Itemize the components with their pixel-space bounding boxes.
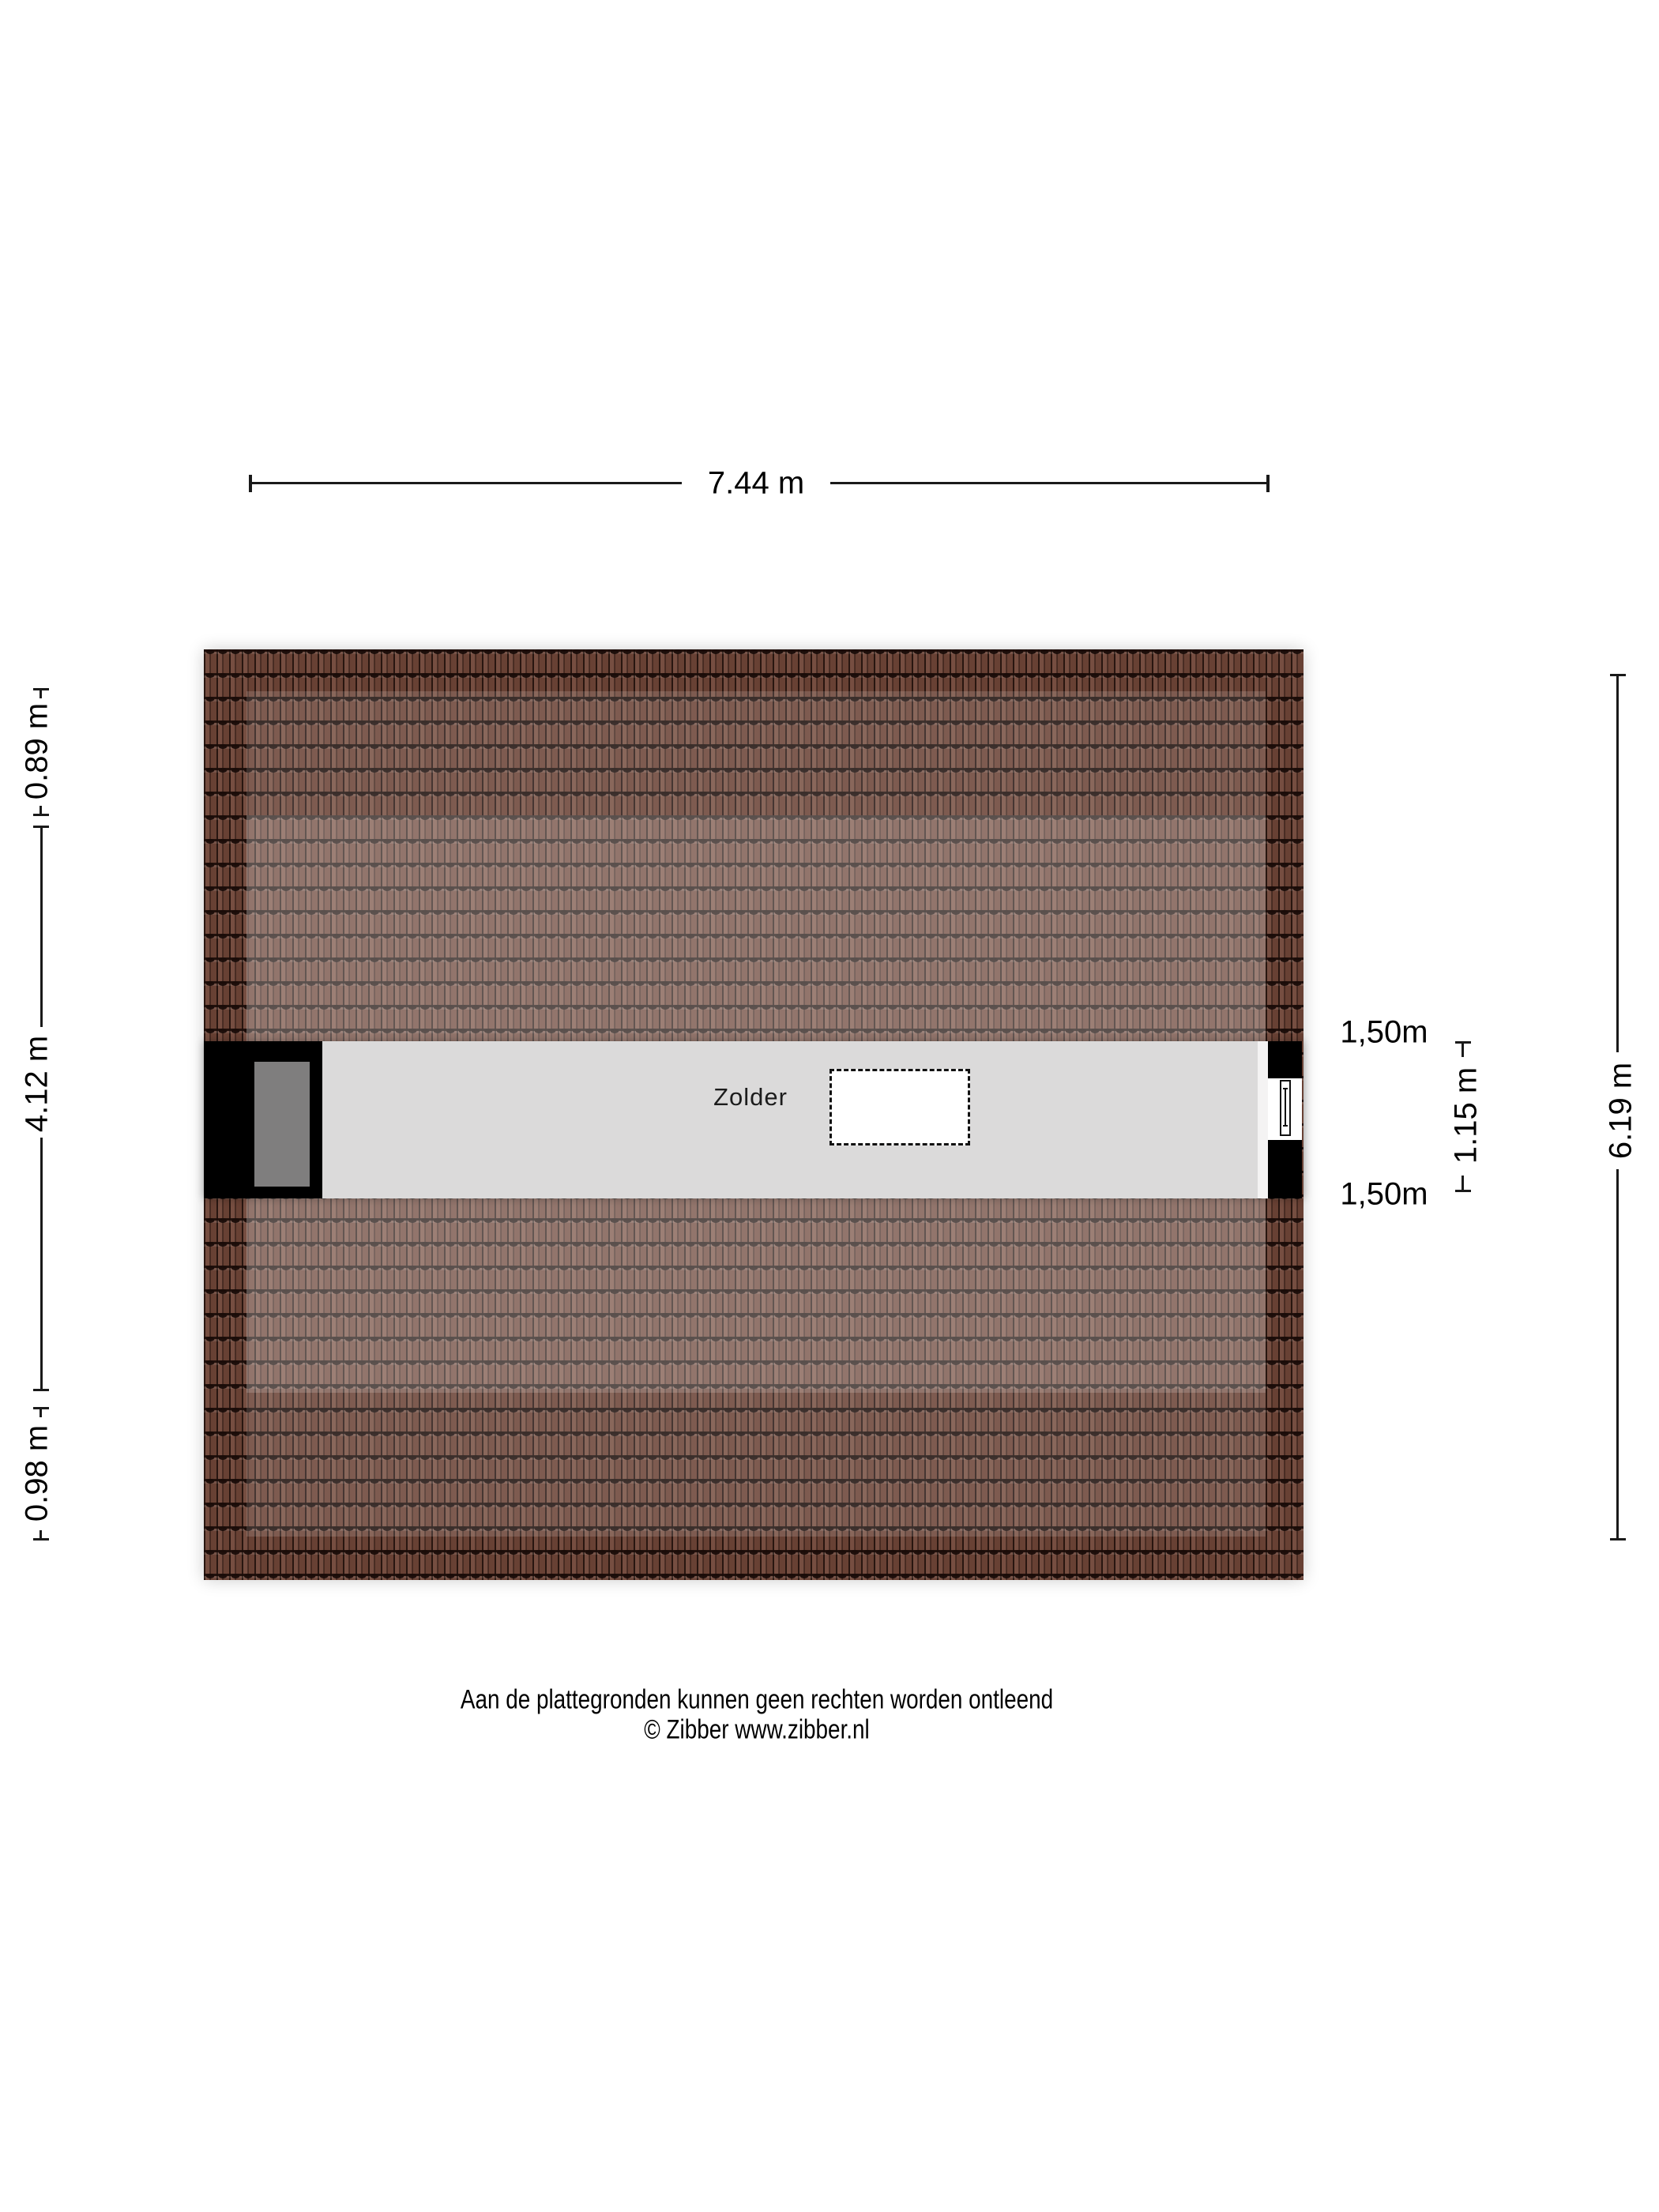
dim-left-lower-stub-top — [39, 1409, 42, 1417]
roof-shade-top-eave — [246, 691, 1266, 815]
dim-left-middle-label: 4.12 m — [20, 1036, 55, 1132]
dim-band-lower-offset-label: 1,50m — [1340, 1177, 1428, 1213]
dim-band-height-stub-top — [1461, 1044, 1464, 1057]
dim-top-tick-right — [1266, 475, 1270, 492]
footer-copyright: © Zibber www.zibber.nl — [644, 1715, 870, 1746]
footer-disclaimer: Aan de plattegronden kunnen geen rechten… — [461, 1685, 1053, 1716]
dim-left-middle-line-bottom — [40, 1138, 43, 1389]
roof-shade-bottom-eave — [246, 1393, 1266, 1537]
dim-left-upper-stub-bottom — [39, 806, 42, 814]
floor-right-edge — [1258, 1041, 1268, 1198]
dim-left-lower-tick-bottom — [33, 1538, 49, 1540]
dim-left-middle-line-top — [40, 828, 43, 1027]
dim-top-line-left — [250, 482, 682, 484]
dim-left-lower-label: 0.98 m — [20, 1425, 55, 1522]
dim-left-upper-stub-top — [39, 690, 42, 698]
floorplan-canvas: Zolder 7.44 m 0.89 m 4.12 m 0.98 m 1,50m — [0, 0, 1659, 2212]
dim-left-upper-label: 0.89 m — [20, 703, 55, 799]
dim-top-line-right — [830, 482, 1268, 484]
dim-right-total-tick-bottom — [1610, 1538, 1626, 1540]
dim-right-total-line-top — [1616, 676, 1619, 1052]
window-icon — [1280, 1080, 1291, 1136]
right-wall-lower — [1268, 1140, 1302, 1198]
room-label: Zolder — [713, 1083, 788, 1112]
dim-left-upper-tick-bottom — [33, 814, 49, 816]
chimney-shaft — [254, 1062, 310, 1187]
roof-shade-bottom-slope — [246, 1198, 1266, 1393]
stair-opening-dashed — [829, 1069, 970, 1145]
dim-band-height-label: 1.15 m — [1449, 1067, 1484, 1164]
attic-band: Zolder — [204, 1041, 1303, 1198]
left-wall-block — [204, 1041, 322, 1198]
right-window-recess — [1268, 1078, 1302, 1140]
right-wall-upper — [1268, 1041, 1302, 1078]
dim-right-total-label: 6.19 m — [1604, 1063, 1639, 1159]
dim-band-height-tick-bottom — [1455, 1190, 1471, 1192]
dim-band-height-stub-bottom — [1461, 1176, 1464, 1190]
dim-left-lower-stub-bottom — [39, 1530, 42, 1538]
roof-shade-top-slope — [246, 815, 1266, 1043]
dim-top-width-label: 7.44 m — [708, 466, 804, 502]
attic-floor — [322, 1041, 1258, 1198]
dim-right-total-line-bottom — [1616, 1169, 1619, 1538]
dim-band-upper-offset-label: 1,50m — [1340, 1015, 1428, 1051]
dim-left-middle-tick-bottom — [33, 1389, 49, 1391]
